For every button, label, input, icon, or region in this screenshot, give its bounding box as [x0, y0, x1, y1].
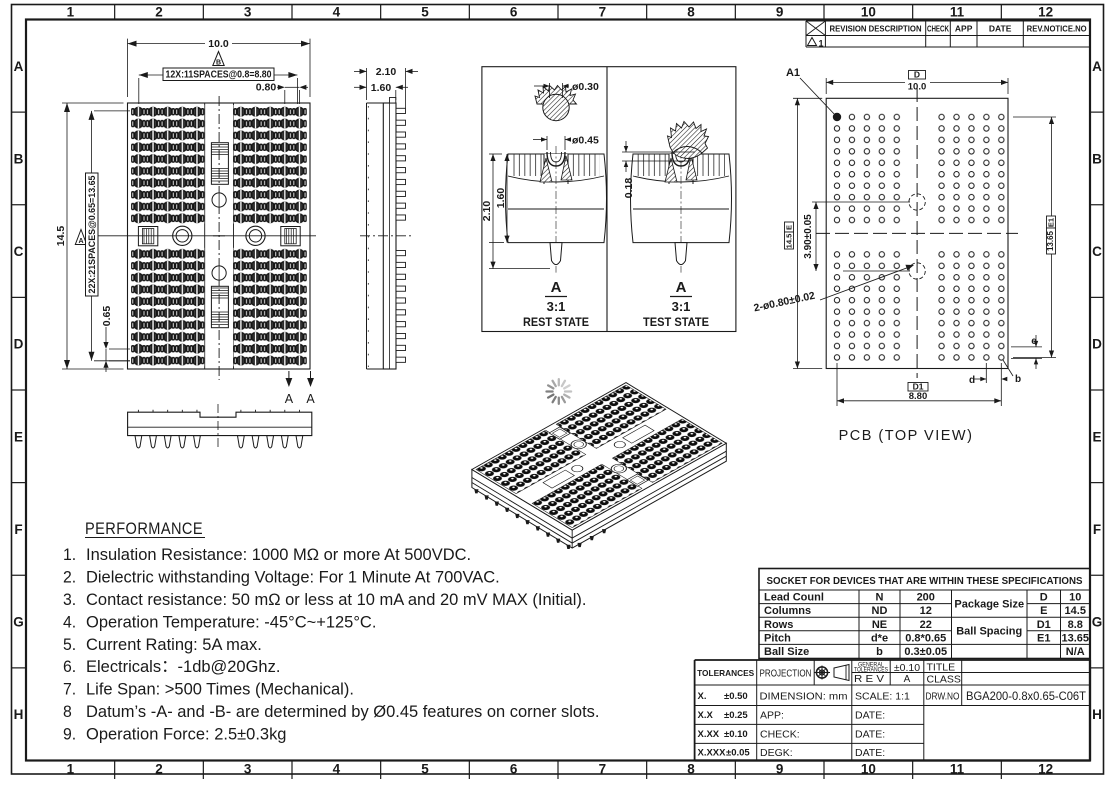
- svg-text:12: 12: [1038, 5, 1053, 20]
- svg-text:TEST STATE: TEST STATE: [643, 317, 709, 329]
- svg-text:F: F: [1093, 522, 1101, 537]
- svg-text:PERFORMANCE: PERFORMANCE: [85, 519, 203, 538]
- svg-text:13.65: 13.65: [1061, 632, 1089, 644]
- svg-text:1: 1: [67, 762, 75, 777]
- svg-text:4: 4: [333, 5, 341, 20]
- svg-text:6: 6: [510, 762, 518, 777]
- svg-text:e: e: [1031, 336, 1037, 347]
- svg-text:8: 8: [63, 703, 72, 722]
- svg-text:Lead Counl: Lead Counl: [764, 592, 824, 604]
- svg-text:SCALE: 1:1: SCALE: 1:1: [855, 691, 910, 703]
- svg-text:Operation Force: 2.5±0.3kg: Operation Force: 2.5±0.3kg: [86, 724, 286, 743]
- svg-text:REVISION DESCRIPTION: REVISION DESCRIPTION: [830, 24, 922, 34]
- svg-text:F: F: [14, 522, 22, 537]
- svg-text:D: D: [1092, 337, 1102, 352]
- svg-text:1.: 1.: [63, 546, 76, 565]
- svg-text:3.90±0.05: 3.90±0.05: [803, 214, 814, 259]
- svg-text:12X:11SPACES@0.8=8.80: 12X:11SPACES@0.8=8.80: [166, 70, 272, 81]
- svg-text:Columns: Columns: [764, 605, 811, 617]
- svg-text:H: H: [1092, 707, 1102, 722]
- svg-text:Package Size: Package Size: [954, 599, 1024, 611]
- svg-text:X.: X.: [698, 691, 707, 702]
- svg-text:G: G: [13, 615, 24, 630]
- svg-text:E: E: [1092, 429, 1101, 444]
- svg-text:TITLE: TITLE: [927, 662, 956, 674]
- svg-text:±0.05: ±0.05: [726, 748, 750, 759]
- svg-text:7.: 7.: [63, 680, 76, 699]
- svg-text:TOLERANCES: TOLERANCES: [697, 668, 754, 678]
- svg-text:E1: E1: [1047, 218, 1056, 227]
- svg-text:14.5: 14.5: [55, 226, 67, 247]
- svg-text:2.10: 2.10: [481, 201, 493, 222]
- svg-text:0.3±0.05: 0.3±0.05: [904, 646, 947, 658]
- svg-text:10: 10: [861, 5, 876, 20]
- svg-text:9: 9: [776, 762, 784, 777]
- svg-text:±0.10: ±0.10: [894, 662, 920, 674]
- svg-text:14.5: 14.5: [785, 234, 794, 249]
- svg-text:ND: ND: [872, 605, 888, 617]
- svg-text:1: 1: [818, 39, 823, 49]
- svg-text:N: N: [876, 592, 884, 604]
- svg-text:9.: 9.: [63, 725, 76, 744]
- svg-text:A1: A1: [786, 67, 800, 79]
- svg-text:0.8*0.65: 0.8*0.65: [905, 632, 946, 644]
- svg-text:E: E: [785, 225, 794, 230]
- svg-text:DATE:: DATE:: [855, 710, 885, 722]
- svg-text:12: 12: [1038, 762, 1053, 777]
- svg-text:A: A: [676, 279, 687, 296]
- svg-text:Electricals：-1db@20Ghz.: Electricals：-1db@20Ghz.: [86, 657, 280, 676]
- svg-text:X.XX: X.XX: [698, 729, 720, 740]
- svg-text:8.8: 8.8: [1068, 619, 1083, 631]
- svg-text:2: 2: [155, 762, 163, 777]
- svg-text:DIMENSION: mm: DIMENSION: mm: [760, 691, 848, 703]
- svg-text:6.: 6.: [63, 658, 76, 677]
- svg-text:14.5: 14.5: [1065, 605, 1086, 617]
- svg-text:B: B: [216, 59, 221, 66]
- svg-text:A: A: [904, 674, 911, 685]
- svg-text:Current Rating: 5A max.: Current Rating: 5A max.: [86, 635, 262, 654]
- svg-text:TOLERANCES: TOLERANCES: [854, 667, 888, 674]
- svg-text:R E V: R E V: [854, 674, 884, 685]
- svg-text:5: 5: [421, 5, 429, 20]
- svg-text:APP: APP: [955, 24, 973, 34]
- svg-text:PCB (TOP VIEW): PCB (TOP VIEW): [839, 428, 974, 444]
- svg-text:12: 12: [920, 605, 932, 617]
- svg-text:A: A: [1092, 59, 1102, 74]
- svg-text:A: A: [551, 279, 562, 296]
- svg-text:E: E: [14, 429, 23, 444]
- svg-text:0.65: 0.65: [101, 306, 113, 327]
- svg-text:d: d: [969, 375, 975, 386]
- svg-text:NE: NE: [872, 619, 887, 631]
- svg-text:3: 3: [244, 5, 252, 20]
- svg-text:D1: D1: [1037, 619, 1051, 631]
- svg-text:Pitch: Pitch: [764, 632, 791, 644]
- svg-text:A: A: [78, 238, 83, 245]
- svg-text:3: 3: [244, 762, 252, 777]
- svg-text:13.65: 13.65: [1046, 230, 1055, 251]
- svg-text:10.0: 10.0: [908, 81, 927, 92]
- svg-text:X.XXX: X.XXX: [698, 748, 727, 759]
- svg-text:Ball Size: Ball Size: [764, 646, 809, 658]
- svg-text:±0.10: ±0.10: [724, 729, 748, 740]
- svg-text:Rows: Rows: [764, 619, 793, 631]
- svg-text:9: 9: [776, 5, 784, 20]
- svg-text:5.: 5.: [63, 635, 76, 654]
- svg-text:7: 7: [599, 762, 607, 777]
- svg-text:b: b: [876, 646, 883, 658]
- svg-text:G: G: [1092, 615, 1103, 630]
- svg-text:D: D: [914, 70, 920, 80]
- svg-text:Dielectric withstanding Voltag: Dielectric withstanding Voltage: For 1 M…: [86, 567, 500, 586]
- svg-text:10.0: 10.0: [208, 38, 229, 50]
- svg-text:0.18: 0.18: [623, 178, 635, 199]
- svg-text:CHECK:: CHECK:: [760, 729, 800, 741]
- svg-text:ø0.45: ø0.45: [572, 135, 599, 147]
- svg-text:D: D: [1040, 592, 1048, 604]
- svg-text:B: B: [14, 151, 24, 166]
- svg-text:CLASS: CLASS: [927, 674, 961, 686]
- svg-text:CHECK: CHECK: [927, 24, 950, 34]
- svg-text:SOCKET FOR DEVICES THAT ARE WI: SOCKET FOR DEVICES THAT ARE WITHIN THESE…: [767, 575, 1083, 587]
- svg-text:1.60: 1.60: [371, 82, 392, 94]
- svg-text:6: 6: [510, 5, 518, 20]
- svg-text:X.X: X.X: [698, 710, 714, 721]
- svg-text:DRW.NO: DRW.NO: [926, 691, 960, 703]
- svg-text:PROJECTION: PROJECTION: [760, 668, 812, 680]
- svg-text:BGA200-0.8x0.65-C06T: BGA200-0.8x0.65-C06T: [966, 689, 1087, 703]
- svg-text:H: H: [14, 707, 24, 722]
- svg-text:2.10: 2.10: [376, 66, 397, 78]
- svg-text:11: 11: [950, 5, 965, 20]
- svg-text:3:1: 3:1: [547, 299, 566, 314]
- svg-text:Operation Temperature: -45°C~+: Operation Temperature: -45°C~+125°C.: [86, 612, 376, 631]
- svg-text:8: 8: [687, 5, 695, 20]
- svg-text:22X:21SPACES@0.65=13.65: 22X:21SPACES@0.65=13.65: [87, 176, 97, 294]
- svg-text:200: 200: [917, 592, 935, 604]
- svg-text:8: 8: [687, 762, 695, 777]
- svg-text:2.: 2.: [63, 568, 76, 587]
- svg-text:Life Span: >500 Times (Mechani: Life Span: >500 Times (Mechanical).: [86, 679, 354, 698]
- svg-text:d*e: d*e: [871, 632, 888, 644]
- svg-text:E: E: [1040, 605, 1047, 617]
- svg-text:N/A: N/A: [1066, 646, 1085, 658]
- svg-text:5: 5: [421, 762, 429, 777]
- svg-text:7: 7: [599, 5, 607, 20]
- svg-text:E1: E1: [1037, 632, 1050, 644]
- svg-text:REST STATE: REST STATE: [523, 317, 589, 329]
- svg-text:8.80: 8.80: [909, 391, 928, 402]
- svg-text:DEGK:: DEGK:: [760, 747, 793, 759]
- svg-text:1.60: 1.60: [495, 188, 507, 209]
- svg-text:D: D: [14, 337, 24, 352]
- svg-text:Insulation Resistance: 1000 MΩ: Insulation Resistance: 1000 MΩ or more A…: [86, 545, 471, 564]
- svg-text:±0.25: ±0.25: [724, 710, 748, 721]
- svg-text:4.: 4.: [63, 613, 76, 632]
- svg-text:11: 11: [950, 762, 965, 777]
- svg-text:1: 1: [67, 5, 75, 20]
- svg-text:10: 10: [861, 762, 876, 777]
- svg-text:3.: 3.: [63, 591, 76, 610]
- svg-text:A: A: [14, 59, 24, 74]
- svg-text:b: b: [1015, 374, 1021, 385]
- svg-text:C: C: [14, 244, 24, 259]
- svg-text:B: B: [1092, 151, 1102, 166]
- svg-text:2: 2: [155, 5, 163, 20]
- svg-text:4: 4: [333, 762, 341, 777]
- svg-text:REV.NOTICE.NO: REV.NOTICE.NO: [1027, 24, 1087, 34]
- svg-text:A: A: [306, 392, 315, 406]
- svg-text:DATE: DATE: [989, 24, 1012, 34]
- svg-text:Ball Spacing: Ball Spacing: [956, 626, 1022, 638]
- svg-text:0.80: 0.80: [256, 82, 277, 94]
- svg-text:10: 10: [1069, 592, 1081, 604]
- svg-text:DATE:: DATE:: [855, 747, 885, 759]
- svg-text:22: 22: [920, 619, 932, 631]
- svg-text:DATE:: DATE:: [855, 729, 885, 741]
- svg-text:A: A: [285, 392, 294, 406]
- svg-text:Datum’s -A- and -B- are determ: Datum’s -A- and -B- are determined by Ø0…: [86, 702, 599, 721]
- svg-text:ø0.30: ø0.30: [572, 81, 599, 93]
- svg-text:APP:: APP:: [760, 710, 784, 722]
- svg-text:Contact resistance: 50 mΩ or l: Contact resistance: 50 mΩ or less at 10 …: [86, 590, 586, 609]
- svg-text:±0.50: ±0.50: [724, 691, 748, 702]
- svg-text:C: C: [1092, 244, 1102, 259]
- svg-text:3:1: 3:1: [672, 299, 691, 314]
